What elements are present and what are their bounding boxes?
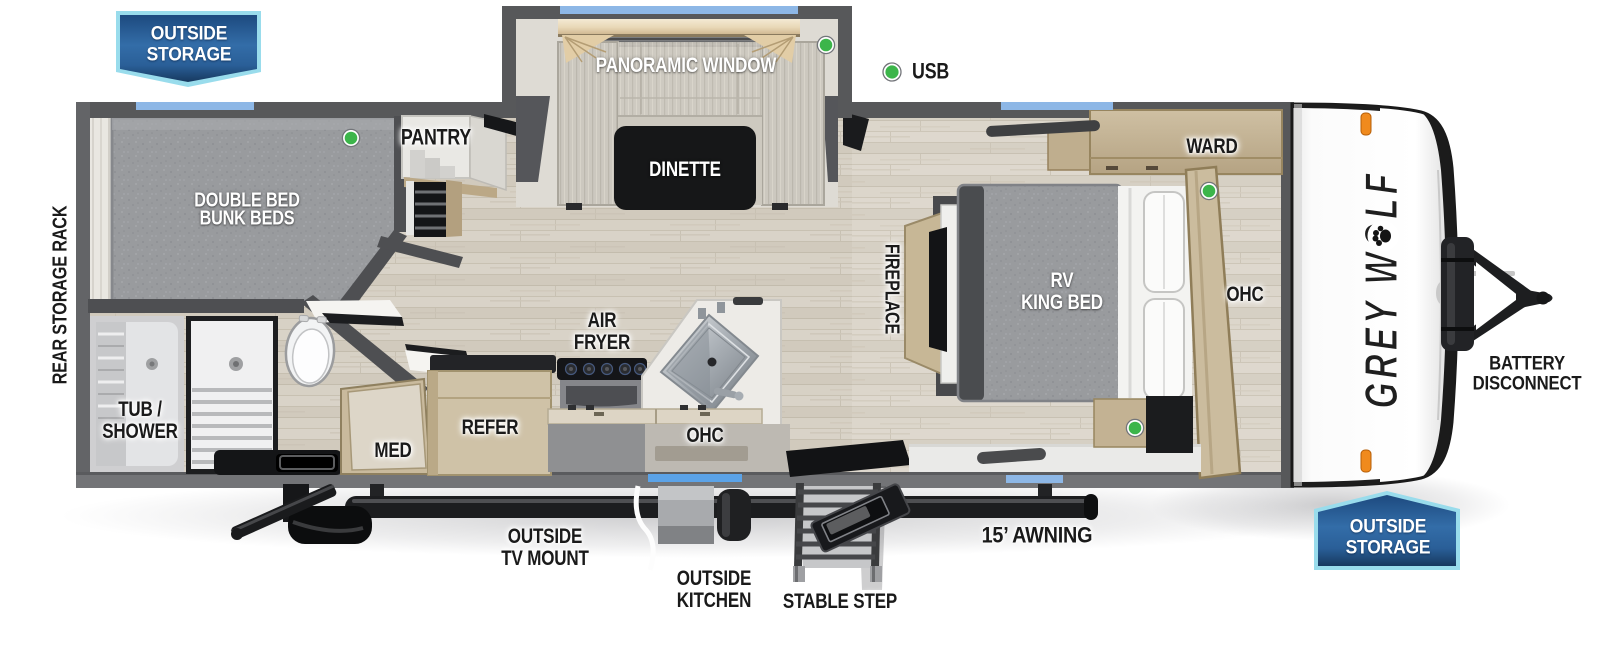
svg-text:GREY WOLF: GREY WOLF <box>1357 170 1407 409</box>
